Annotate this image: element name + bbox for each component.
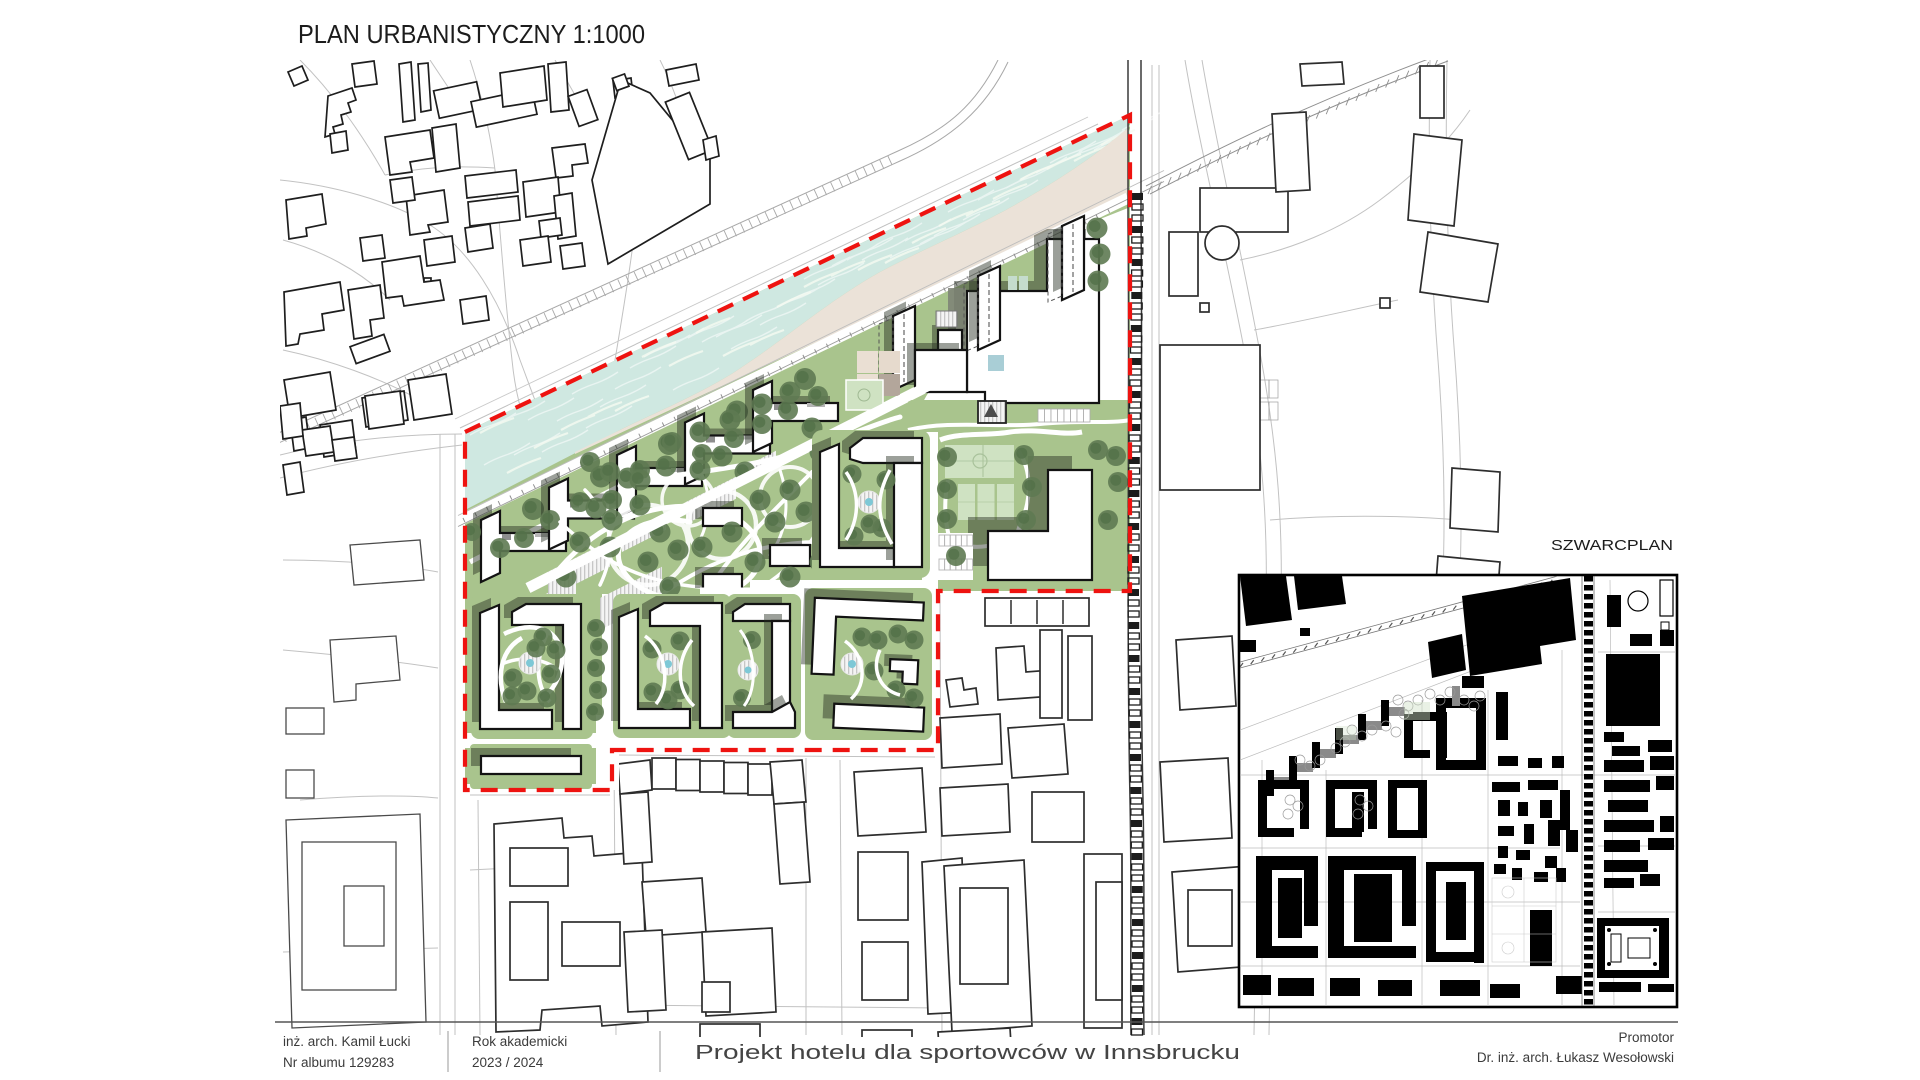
svg-text:Projekt hotelu dla sportowców: Projekt hotelu dla sportowców w Innsbruc… [695, 1041, 1240, 1064]
svg-text:Promotor: Promotor [1618, 1030, 1674, 1045]
svg-text:Rok akademicki: Rok akademicki [472, 1034, 567, 1049]
svg-text:SZWARCPLAN: SZWARCPLAN [1551, 537, 1673, 554]
svg-text:2023 / 2024: 2023 / 2024 [472, 1055, 544, 1070]
svg-text:PLAN URBANISTYCZNY 1:1000: PLAN URBANISTYCZNY 1:1000 [298, 19, 645, 49]
svg-text:Dr. inż. arch. Łukasz Wesołows: Dr. inż. arch. Łukasz Wesołowski [1477, 1050, 1674, 1065]
svg-text:inż. arch. Kamil Łucki: inż. arch. Kamil Łucki [283, 1034, 411, 1049]
svg-text:Nr albumu 129283: Nr albumu 129283 [283, 1055, 394, 1070]
